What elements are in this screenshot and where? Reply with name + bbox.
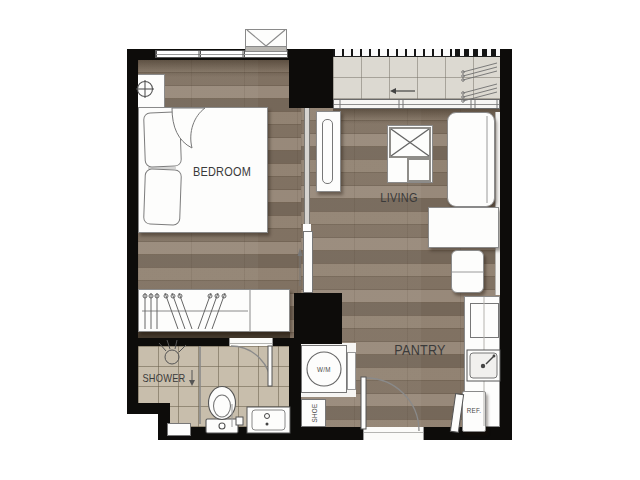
balcony-floor xyxy=(333,56,500,99)
door-jamb-mark xyxy=(303,224,311,231)
entrance-threshold xyxy=(363,427,424,440)
chair xyxy=(451,250,484,293)
ac-ledge-bar xyxy=(245,46,287,52)
floorplan-canvas: BEDROOM LIVING PANTRY SHOWER W/M SHOE RE… xyxy=(0,0,640,480)
sofa xyxy=(447,112,495,207)
pillow xyxy=(143,168,182,225)
balcony-railing xyxy=(333,49,455,57)
coffee-table-x-top xyxy=(389,127,431,158)
wall-bedroom-living xyxy=(304,108,310,231)
wall-bottom xyxy=(158,427,512,440)
shower-label: SHOWER xyxy=(142,372,185,384)
wardrobe xyxy=(138,289,290,332)
wall-left xyxy=(127,49,138,414)
pillow xyxy=(143,111,182,167)
bedroom-label: BEDROOM xyxy=(193,164,251,179)
living-label: LIVING xyxy=(380,190,417,205)
floor-seat xyxy=(407,158,431,182)
balcony-sliding-door xyxy=(333,99,500,109)
wall-chunk-middle xyxy=(294,293,342,344)
bedroom-door-leaf xyxy=(303,231,313,293)
outside-notch-mask xyxy=(127,414,158,444)
tv-slab xyxy=(322,119,333,184)
wall-right xyxy=(500,49,512,440)
bathroom-threshold xyxy=(229,338,273,346)
pantry-label: PANTRY xyxy=(394,341,445,358)
wall-bathroom-right xyxy=(289,338,301,428)
washing-machine-label: W/M xyxy=(317,366,331,373)
shoe-cabinet-label: SHOE xyxy=(310,404,317,423)
balcony-railing-dense xyxy=(455,49,500,57)
cooktop xyxy=(470,303,499,338)
refrigerator-label: REF. xyxy=(467,407,482,414)
wall-chunk-top-middle xyxy=(289,49,333,108)
washer-side-panel xyxy=(347,352,356,390)
desk xyxy=(428,207,499,248)
bathroom-corner-box xyxy=(167,423,191,436)
